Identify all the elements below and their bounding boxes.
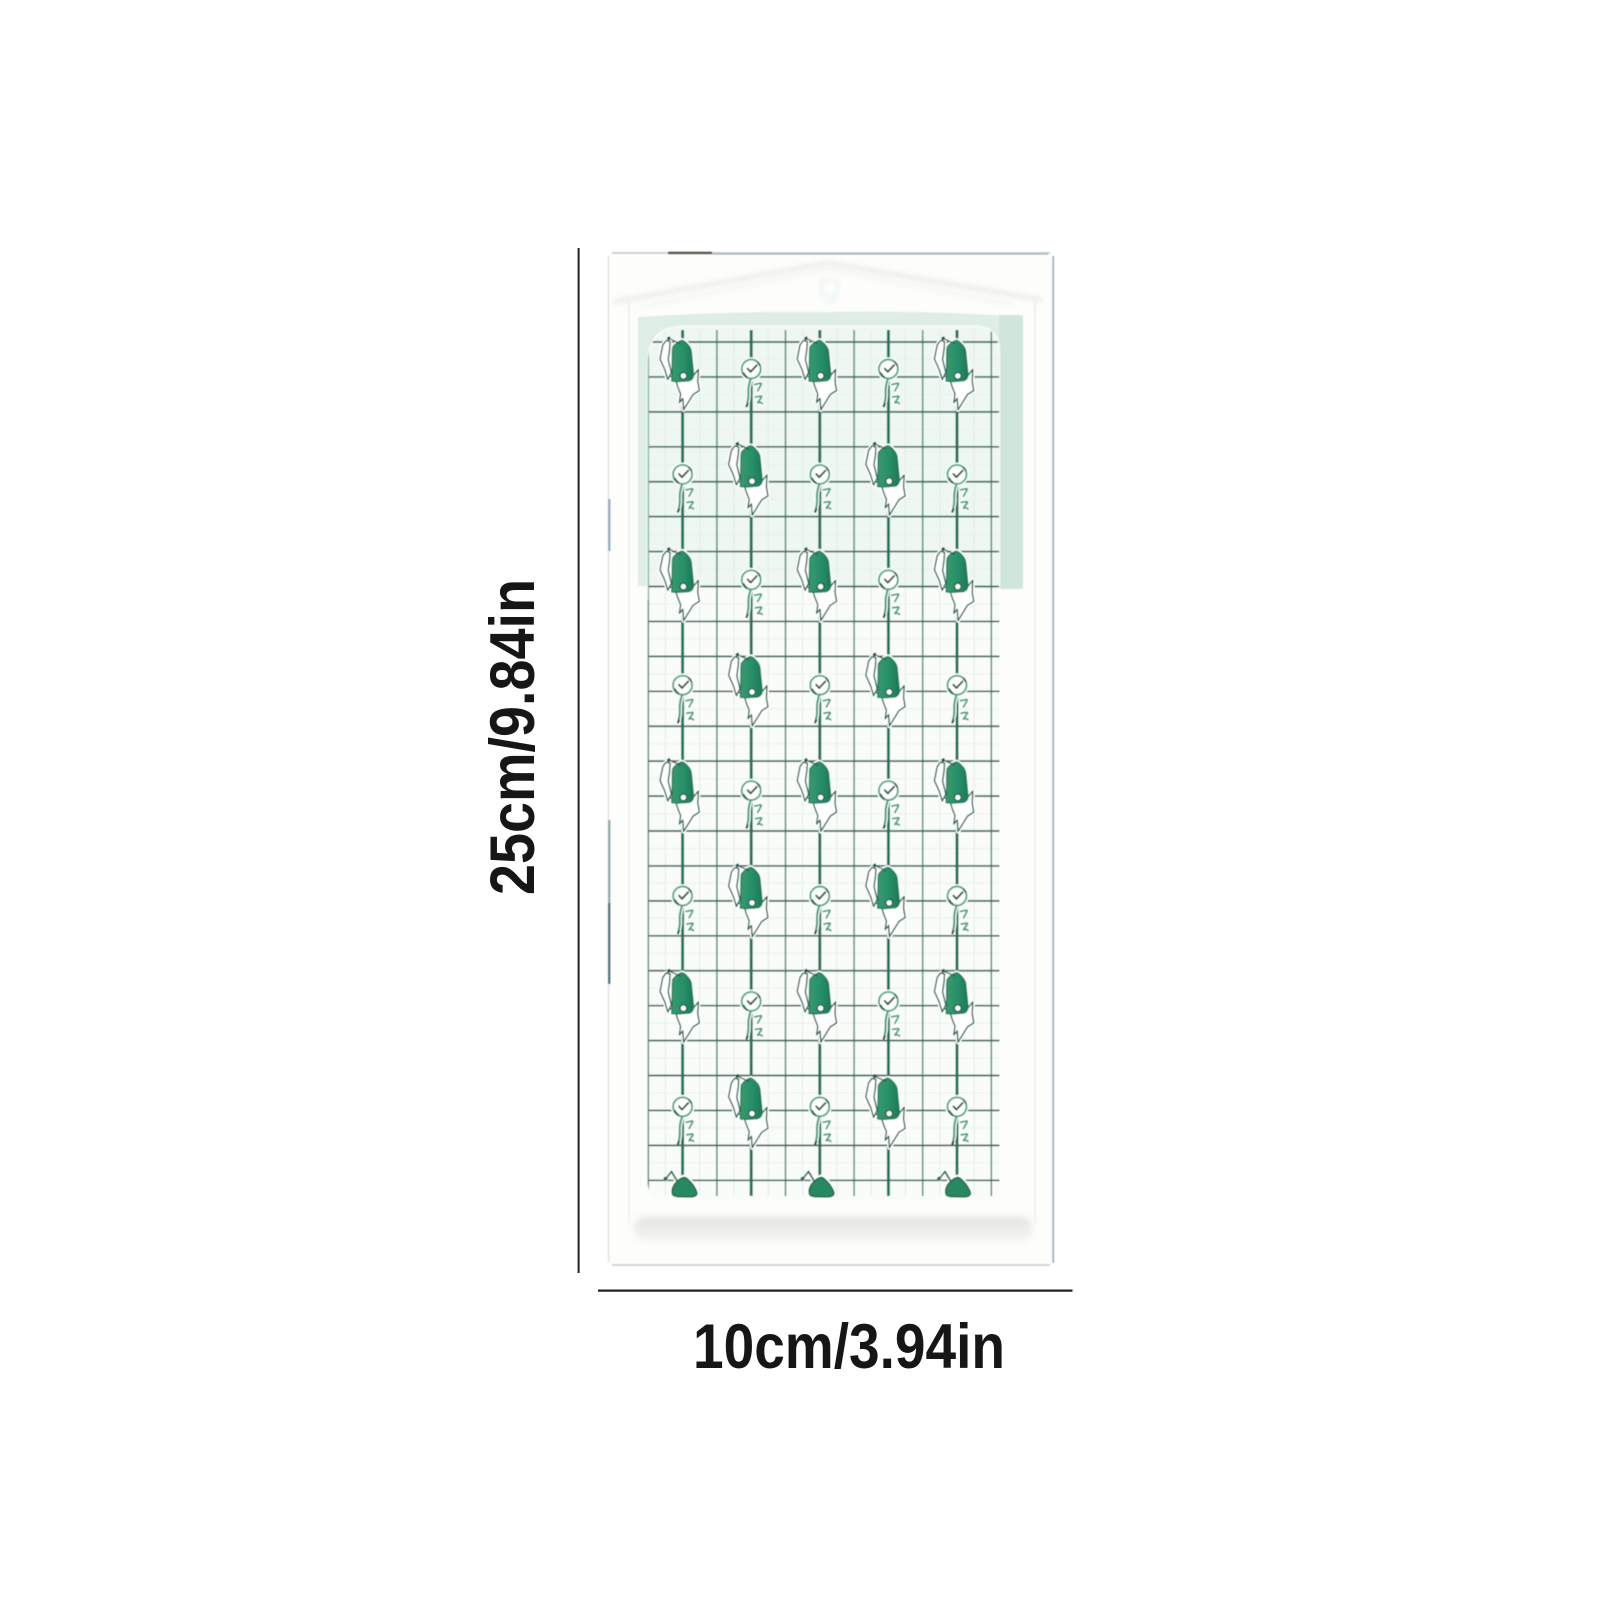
svg-text:10cm/3.94in: 10cm/3.94in (693, 1312, 1005, 1382)
svg-text:25cm/9.84in: 25cm/9.84in (478, 579, 548, 895)
